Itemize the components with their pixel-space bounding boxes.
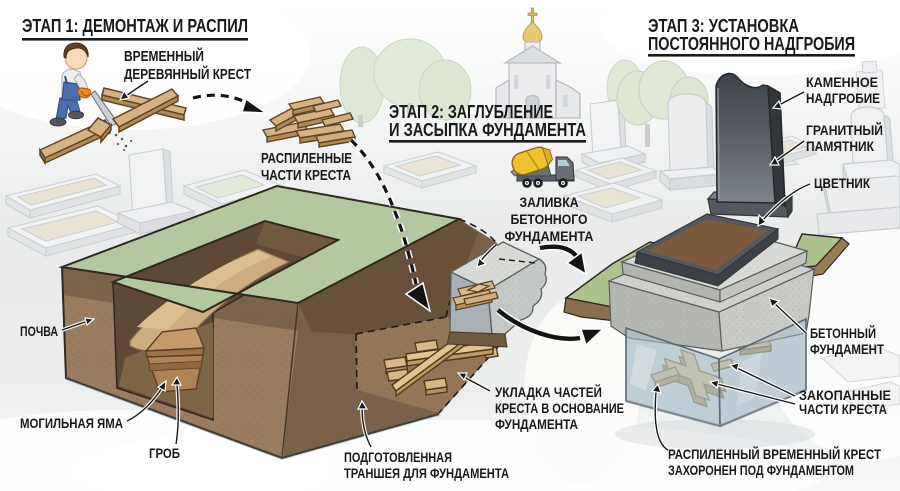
svg-text:ЗАЛИВКА: ЗАЛИВКА xyxy=(520,194,579,210)
svg-text:КАМЕННОЕ: КАМЕННОЕ xyxy=(806,74,878,90)
svg-text:НАДГРОБИЕ: НАДГРОБИЕ xyxy=(806,90,880,106)
svg-text:ВРЕМЕННЫЙ: ВРЕМЕННЫЙ xyxy=(124,47,204,65)
svg-text:ФУНДАМЕНТА: ФУНДАМЕНТА xyxy=(495,416,578,432)
svg-text:ЦВЕТНИК: ЦВЕТНИК xyxy=(814,175,870,191)
svg-text:ТРАНШЕЯ ДЛЯ ФУНДАМЕНТА: ТРАНШЕЯ ДЛЯ ФУНДАМЕНТА xyxy=(344,465,509,481)
svg-text:ЧАСТИ КРЕСТА: ЧАСТИ КРЕСТА xyxy=(799,401,887,417)
svg-text:ЭТАП 1: ДЕМОНТАЖ И РАСПИЛ: ЭТАП 1: ДЕМОНТАЖ И РАСПИЛ xyxy=(22,15,248,36)
svg-text:ГРАНИТНЫЙ: ГРАНИТНЫЙ xyxy=(806,121,883,138)
svg-text:ЭТАП 3: УСТАНОВКА: ЭТАП 3: УСТАНОВКА xyxy=(648,16,799,36)
svg-text:УКЛАДКА ЧАСТЕЙ: УКЛАДКА ЧАСТЕЙ xyxy=(495,383,602,400)
svg-text:ЭТАП 2: ЗАГЛУБЛЕНИЕ: ЭТАП 2: ЗАГЛУБЛЕНИЕ xyxy=(389,102,553,122)
svg-text:ПОСТОЯННОГО НАДГРОБИЯ: ПОСТОЯННОГО НАДГРОБИЯ xyxy=(648,34,855,54)
svg-text:БЕТОННЫЙ: БЕТОННЫЙ xyxy=(810,324,876,341)
svg-text:ПАМЯТНИК: ПАМЯТНИК xyxy=(806,138,874,154)
svg-text:И ЗАСЫПКА ФУНДАМЕНТА: И ЗАСЫПКА ФУНДАМЕНТА xyxy=(389,120,586,140)
svg-text:МОГИЛЬНАЯ ЯМА: МОГИЛЬНАЯ ЯМА xyxy=(20,415,123,431)
svg-text:ЧАСТИ КРЕСТА: ЧАСТИ КРЕСТА xyxy=(261,168,351,184)
svg-text:ПОДГОТОВЛЕННАЯ: ПОДГОТОВЛЕННАЯ xyxy=(344,449,452,465)
svg-text:ПОЧВА: ПОЧВА xyxy=(20,323,58,339)
svg-text:РАСПИЛЕННЫЙ ВРЕМЕННЫЙ КРЕСТ: РАСПИЛЕННЫЙ ВРЕМЕННЫЙ КРЕСТ xyxy=(668,445,881,462)
svg-text:ФУНДАМЕНТА: ФУНДАМЕНТА xyxy=(505,228,594,244)
svg-text:ДЕРЕВЯННЫЙ КРЕСТ: ДЕРЕВЯННЫЙ КРЕСТ xyxy=(124,65,251,83)
svg-text:ГРОБ: ГРОБ xyxy=(149,445,180,461)
svg-text:РАСПИЛЕННЫЕ: РАСПИЛЕННЫЕ xyxy=(261,151,352,167)
svg-text:КРЕСТА В ОСНОВАНИЕ: КРЕСТА В ОСНОВАНИЕ xyxy=(495,400,624,416)
svg-text:ЗАХОРОНЕН ПОД ФУНДАМЕНТОМ: ЗАХОРОНЕН ПОД ФУНДАМЕНТОМ xyxy=(668,462,854,478)
svg-text:БЕТОННОГО: БЕТОННОГО xyxy=(511,211,588,227)
svg-text:ФУНДАМЕНТ: ФУНДАМЕНТ xyxy=(810,341,884,357)
